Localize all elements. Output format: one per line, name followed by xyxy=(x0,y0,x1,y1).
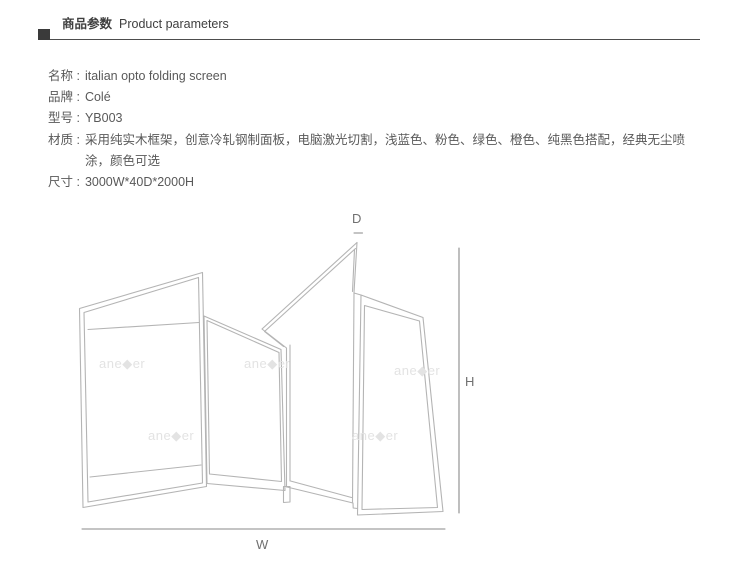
panel-joint-line xyxy=(354,293,361,295)
panel-2 xyxy=(204,316,285,491)
watermark: ane◆er xyxy=(244,357,290,371)
watermark: ane◆er xyxy=(99,357,145,371)
watermark: ane◆er xyxy=(148,429,194,443)
folding-screen-diagram xyxy=(0,0,750,562)
depth-dimension-label: D xyxy=(352,211,361,226)
panel-3 xyxy=(262,243,358,509)
width-dimension-label: W xyxy=(256,537,268,552)
watermark: ane◆er xyxy=(352,429,398,443)
watermark: ane◆er xyxy=(394,364,440,378)
dimension-lines xyxy=(82,233,459,529)
panel-4 xyxy=(358,295,444,515)
height-dimension-label: H xyxy=(465,374,474,389)
panel-1 xyxy=(80,273,207,508)
